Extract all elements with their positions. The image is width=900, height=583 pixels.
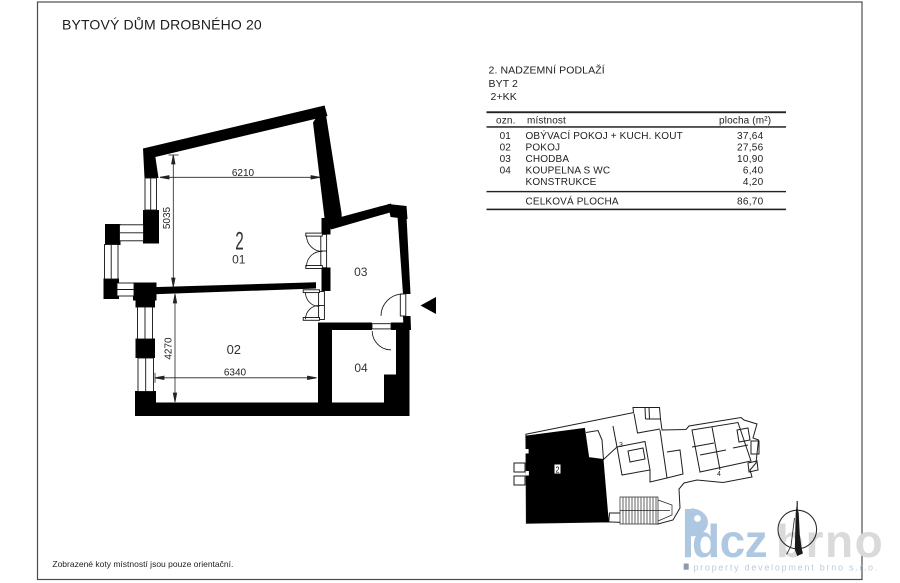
svg-text:ozn.: ozn. (496, 115, 516, 126)
svg-text:POKOJ: POKOJ (526, 143, 561, 154)
svg-text:dcz: dcz (692, 515, 767, 567)
svg-text:86,70: 86,70 (737, 197, 764, 208)
svg-text:2. NADZEMNÍ PODLAŽÍ: 2. NADZEMNÍ PODLAŽÍ (489, 64, 605, 77)
svg-text:01: 01 (500, 131, 512, 142)
svg-text:Zobrazené koty místností jsou: Zobrazené koty místností jsou pouze orie… (52, 559, 233, 569)
svg-text:5035: 5035 (162, 206, 173, 229)
svg-text:10,90: 10,90 (737, 154, 764, 165)
svg-text:2: 2 (556, 465, 560, 474)
svg-text:CELKOVÁ PLOCHA: CELKOVÁ PLOCHA (526, 195, 619, 208)
svg-text:02: 02 (500, 143, 512, 154)
svg-text:KONSTRUKCE: KONSTRUKCE (526, 177, 597, 188)
svg-text:property development brno s.r.: property development brno s.r.o. (693, 563, 879, 573)
svg-text:4,20: 4,20 (743, 177, 764, 188)
svg-text:37,64: 37,64 (737, 131, 764, 142)
svg-text:2+KK: 2+KK (491, 91, 517, 103)
svg-text:místnost: místnost (527, 115, 566, 126)
svg-text:6340: 6340 (224, 368, 247, 379)
svg-text:brno: brno (776, 515, 884, 567)
svg-text:BYTOVÝ DŮM DROBNÉHO 20: BYTOVÝ DŮM DROBNÉHO 20 (62, 16, 262, 33)
svg-text:CHODBA: CHODBA (526, 154, 570, 165)
svg-text:04: 04 (500, 165, 512, 176)
svg-text:03: 03 (354, 265, 368, 279)
svg-text:BYT 2: BYT 2 (489, 78, 519, 90)
svg-text:4270: 4270 (164, 337, 175, 360)
svg-text:KOUPELNA S WC: KOUPELNA S WC (526, 165, 611, 176)
svg-text:plocha (m²): plocha (m²) (719, 115, 771, 126)
svg-text:4: 4 (717, 471, 721, 478)
svg-text:03: 03 (500, 154, 512, 165)
svg-text:6210: 6210 (232, 168, 255, 179)
svg-text:OBÝVACÍ POKOJ + KUCH. KOUT: OBÝVACÍ POKOJ + KUCH. KOUT (526, 129, 683, 142)
svg-text:2: 2 (235, 228, 244, 256)
svg-text:27,56: 27,56 (737, 143, 764, 154)
svg-text:6,40: 6,40 (743, 165, 764, 176)
svg-text:02: 02 (227, 342, 241, 357)
svg-text:04: 04 (354, 361, 368, 375)
svg-text:01: 01 (232, 253, 246, 267)
svg-text:3: 3 (619, 442, 623, 449)
